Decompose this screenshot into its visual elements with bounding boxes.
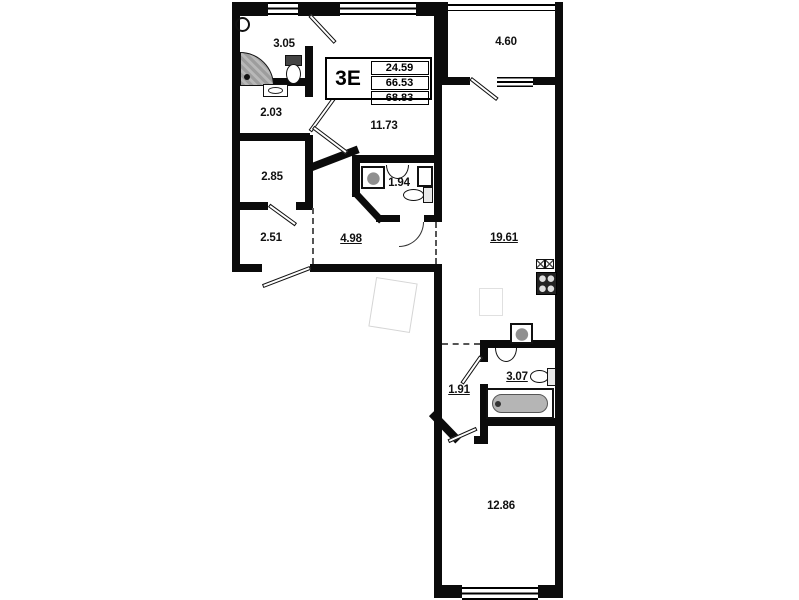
- room-label-lower-hall: 1.91: [448, 384, 470, 396]
- vent-duct-box: [417, 166, 433, 187]
- toilet-tank-icon-2: [423, 187, 433, 203]
- unit-type-label: 3Е: [327, 59, 369, 98]
- wall-balcony-left: [440, 2, 448, 85]
- window-shower-room: [268, 2, 298, 16]
- wall-bottom-seg-2: [538, 585, 563, 598]
- wall-balcony-bottom-2: [533, 77, 557, 85]
- wall-storage-entry-1: [240, 202, 268, 210]
- area-values: 24.59 66.53 68.83: [369, 59, 430, 98]
- shower-tray-icon: [240, 52, 274, 86]
- washing-machine-icon-2: [510, 323, 533, 344]
- zone-dash-kitchen-hall: [442, 343, 480, 345]
- wall-top-2: [298, 2, 340, 16]
- toilet-bowl-icon-2: [403, 189, 424, 201]
- wall-wc-bottom-2: [424, 215, 436, 222]
- wall-hall-storage: [240, 133, 310, 141]
- zone-dash-corridor-kitchen: [435, 222, 437, 264]
- bathroom-door-leaf: [460, 355, 482, 384]
- bathtub-icon: [486, 388, 554, 419]
- wall-bedroom-upper-bottom: [352, 155, 442, 163]
- floor-plan-canvas: 3Е 24.59 66.53 68.83 3.05 2.03 2.85 2.51…: [0, 0, 799, 600]
- total-area-value: 68.83: [371, 91, 429, 105]
- faint-exterior-shaft-1: [368, 277, 417, 333]
- room-label-kitchen-living: 19.61: [490, 232, 518, 244]
- toilet-tank-icon-3: [547, 368, 556, 386]
- wall-left-outer: [232, 2, 240, 272]
- window-bedroom-lower: [462, 587, 538, 600]
- bathtub-drain-icon: [495, 401, 501, 407]
- room-label-balcony: 4.60: [495, 36, 517, 48]
- washing-machine-icon-1: [361, 166, 385, 189]
- wall-left-lower: [434, 264, 442, 598]
- faint-exterior-shaft-2: [479, 288, 503, 316]
- balcony-glazing: [448, 4, 555, 11]
- wall-bottom-seg-1: [434, 585, 462, 598]
- sink-icon-bathroom: [495, 348, 517, 362]
- shower-drain-icon: [244, 74, 250, 80]
- title-block: 3Е 24.59 66.53 68.83: [325, 57, 432, 100]
- window-kitchen: [497, 77, 533, 87]
- sink-basin: [268, 87, 283, 94]
- room-label-bedroom-lower: 12.86: [487, 500, 515, 512]
- room-label-entry-hall: 2.51: [260, 232, 282, 244]
- corner-sink-icon: [235, 17, 250, 32]
- wall-right-outer: [555, 2, 563, 598]
- room-label-corridor: 4.98: [340, 233, 362, 245]
- storage-door-leaf: [268, 204, 297, 227]
- wall-bottom-left-1: [232, 264, 262, 272]
- balcony-door-leaf: [469, 77, 498, 101]
- vent-icon-2: [545, 259, 554, 269]
- room-label-storage: 2.85: [261, 171, 283, 183]
- room-label-shower-room: 3.05: [273, 38, 295, 50]
- wall-wc-bottom-1: [376, 215, 400, 222]
- wall-bedroom-lower-stub: [474, 436, 488, 444]
- living-area-value: 24.59: [371, 61, 429, 75]
- room-label-wc: 1.94: [388, 177, 410, 189]
- vent-icon-1: [536, 259, 545, 269]
- room-label-upper-hall: 2.03: [260, 107, 282, 119]
- wall-vert-mid-1: [305, 46, 313, 97]
- shower-room-door-leaf: [308, 14, 336, 44]
- sink-icon-hall: [263, 84, 288, 97]
- toilet-bowl-icon-1: [286, 64, 301, 84]
- room-label-bedroom-upper: 11.73: [370, 120, 397, 132]
- wall-bathroom-bottom: [480, 418, 557, 426]
- apartment-area-value: 66.53: [371, 76, 429, 90]
- wall-bottom-left-2: [310, 264, 442, 272]
- entrance-door-leaf: [262, 266, 311, 288]
- wall-balcony-bottom-1: [442, 77, 470, 85]
- stove-icon: [536, 272, 557, 295]
- bedroom-upper-door-leaf: [312, 126, 348, 154]
- zone-dash-entry-corridor: [312, 208, 314, 264]
- window-bedroom-upper: [340, 2, 416, 16]
- room-label-bathroom: 3.07: [506, 371, 528, 383]
- wc-door-arc: [399, 222, 424, 247]
